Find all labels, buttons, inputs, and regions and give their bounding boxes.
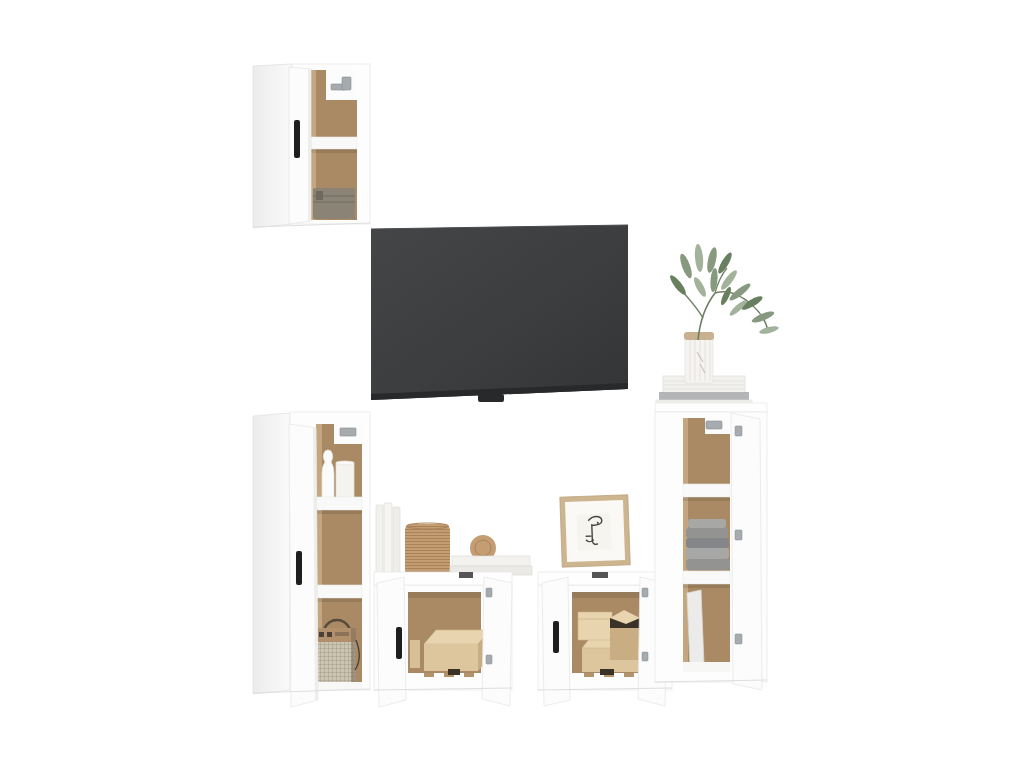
shelf-shadow xyxy=(683,584,730,588)
box-latch xyxy=(600,669,614,675)
frame-art-area xyxy=(576,513,611,550)
candle-decor xyxy=(336,461,354,499)
wicker-basket xyxy=(405,523,450,576)
hinge-icon xyxy=(642,588,648,597)
top-rail-slot xyxy=(592,572,608,578)
pallet-slat xyxy=(624,673,634,677)
retro-radio xyxy=(316,620,359,684)
hinge-icon xyxy=(706,421,722,429)
tall-cabinet-right-door xyxy=(731,413,762,690)
box-sliver xyxy=(410,640,420,668)
tall-cabinet-right-top-slab xyxy=(655,403,767,412)
box-upper xyxy=(578,612,612,640)
picture-frame xyxy=(560,495,630,567)
pallet-slat xyxy=(584,673,594,677)
gray-storage-box xyxy=(313,188,355,219)
shelf-shadow xyxy=(316,510,362,514)
folded-towels xyxy=(686,519,730,570)
gray-book xyxy=(659,392,749,401)
pallet-slat xyxy=(464,673,474,677)
wall-cabinet-top-shelf xyxy=(311,137,357,149)
low-cabinet-right xyxy=(538,572,672,706)
plant xyxy=(668,244,780,340)
hinge-icon xyxy=(735,426,742,436)
wall-cabinet-top xyxy=(253,64,370,228)
radio-shadow-side xyxy=(351,628,356,684)
top-rail-slot xyxy=(459,572,473,578)
door-edge xyxy=(308,69,311,221)
box-front xyxy=(424,644,478,671)
door-handle xyxy=(396,627,402,659)
furniture-scene xyxy=(0,0,1024,768)
leaf xyxy=(719,286,733,307)
box-latch xyxy=(448,669,460,675)
pallet-slat xyxy=(424,673,434,677)
low-cabinet-left xyxy=(374,572,512,707)
tall-cabinet-left-door-handle xyxy=(296,551,302,585)
shelf-shadow xyxy=(683,497,730,501)
tv-stand-notch xyxy=(478,394,504,402)
leaf xyxy=(668,273,688,296)
decor-on-low-cabinet-left xyxy=(376,503,532,576)
hinge-icon xyxy=(486,588,492,597)
leaf xyxy=(728,281,753,303)
hinge-icon xyxy=(735,530,742,540)
tall-cabinet-left-side-panel xyxy=(253,413,290,694)
vase xyxy=(684,332,714,383)
plant-decor-group xyxy=(656,244,779,407)
leaf xyxy=(678,252,694,279)
leaf xyxy=(759,325,780,336)
leaning-panel xyxy=(687,590,704,667)
interior-floor xyxy=(683,662,730,672)
shelf xyxy=(316,497,362,510)
shelf xyxy=(683,484,730,497)
wall-cabinet-top-door-handle xyxy=(294,120,300,158)
door-handle xyxy=(553,621,559,653)
interior-floor xyxy=(316,682,362,689)
tall-cabinet-left xyxy=(253,412,370,707)
tall-cabinet-right xyxy=(655,403,767,690)
product-photo-stage xyxy=(0,0,1024,768)
shelf xyxy=(316,585,362,598)
shelf xyxy=(683,571,730,584)
hinge-icon xyxy=(486,655,492,664)
leaf xyxy=(705,246,718,273)
leaning-books xyxy=(376,503,400,575)
white-vase-decor xyxy=(322,450,334,499)
hinge-icon xyxy=(735,634,742,644)
leaf xyxy=(694,244,704,273)
shelf-shadow xyxy=(311,149,357,153)
hinge-icon xyxy=(340,428,356,436)
box-front-small xyxy=(610,628,640,660)
wall-cabinet-top-side-panel xyxy=(253,64,292,228)
leaf xyxy=(751,309,776,324)
book-stack-with-disc xyxy=(450,535,532,575)
hinge-icon xyxy=(642,652,648,661)
shelf-shadow xyxy=(316,598,362,602)
tv xyxy=(371,225,628,402)
tv-screen-sheen xyxy=(371,225,628,400)
leaf xyxy=(692,276,709,299)
